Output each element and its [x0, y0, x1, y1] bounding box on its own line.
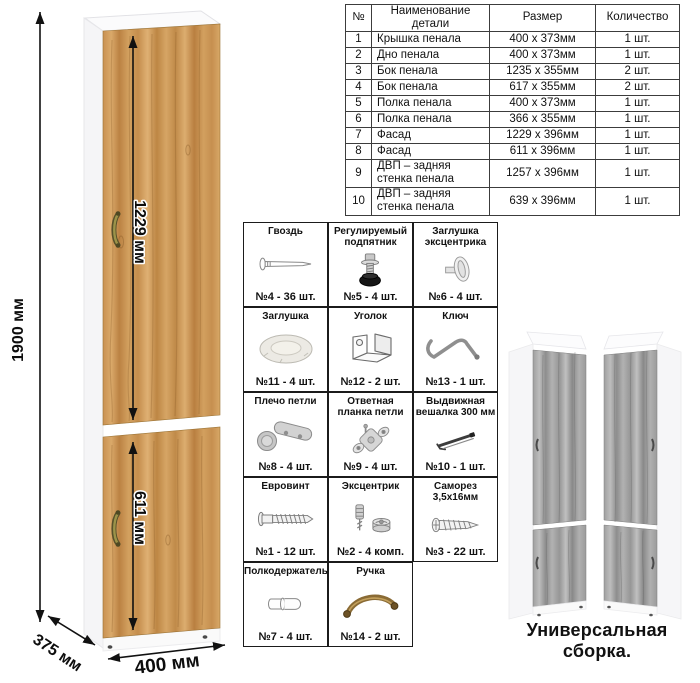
variant-cabinet-right: [604, 332, 681, 619]
hardware-title: Эксцентрик: [329, 478, 412, 492]
cell-qty: 1 шт.: [596, 31, 680, 47]
hardware-count: №1 - 12 шт.: [244, 546, 327, 561]
dimension-height-1900: 1900 мм: [10, 12, 40, 622]
cell-name: ДВП – задняя стенка пенала: [372, 187, 490, 215]
lower-door-label: 611 мм: [131, 491, 148, 545]
cell-size: 611 х 396мм: [490, 143, 596, 159]
hardware-count: №5 - 4 шт.: [329, 291, 412, 306]
hardware-item-handle: Ручка №14 - 2 шт.: [328, 562, 413, 647]
table-row: 6 Полка пенала 366 х 355мм 1 шт.: [346, 111, 680, 127]
hardware-count: №9 - 4 шт.: [329, 461, 412, 476]
cell-name: Фасад: [372, 127, 490, 143]
cell-size: 400 х 373мм: [490, 47, 596, 63]
cam-lock-icon: [329, 492, 412, 546]
hardware-count: №14 - 2 шт.: [329, 631, 412, 646]
hardware-item-shelf-pin: Полкодержатель №7 - 4 шт.: [243, 562, 328, 647]
parts-table: № Наименование детали Размер Количество …: [345, 4, 680, 216]
table-row: 9 ДВП – задняя стенка пенала 1257 х 396м…: [346, 159, 680, 187]
cell-size: 1257 х 396мм: [490, 159, 596, 187]
cell-num: 6: [346, 111, 372, 127]
cap-icon: [244, 322, 327, 376]
hardware-title: Гвоздь: [244, 223, 327, 237]
col-header-size: Размер: [490, 5, 596, 32]
hardware-title: Евровинт: [244, 478, 327, 492]
hardware-count: №10 - 1 шт.: [414, 461, 497, 476]
hinge-arm-icon: [244, 407, 327, 461]
hardware-title: Саморез 3,5х16мм: [414, 478, 497, 503]
confirmat-screw-icon: [244, 492, 327, 546]
hardware-title: Ручка: [329, 563, 412, 577]
key-icon: [414, 322, 497, 376]
hardware-title: Полкодержатель: [244, 563, 327, 577]
cell-size: 400 х 373мм: [490, 95, 596, 111]
cell-num: 9: [346, 159, 372, 187]
assembly-caption: Универсальная сборка.: [494, 620, 700, 662]
upper-door-label: 1229 мм: [131, 200, 148, 264]
dimension-width-400: 400 мм: [108, 645, 225, 679]
corner-bracket-icon: [329, 322, 412, 376]
hinge-plate-icon: [329, 418, 412, 461]
cell-size: 1235 х 355мм: [490, 63, 596, 79]
col-header-num: №: [346, 5, 372, 32]
cell-name: Фасад: [372, 143, 490, 159]
universal-assembly-variants: [497, 325, 700, 620]
hardware-item-hinge-arm: Плечо петли №8 - 4 шт.: [243, 392, 328, 477]
cell-num: 5: [346, 95, 372, 111]
cam-cover-icon: [414, 248, 497, 291]
hardware-item-self-tapping-screw: Саморез 3,5х16мм №3 - 22 шт.: [413, 477, 498, 562]
cell-qty: 2 шт.: [596, 63, 680, 79]
cell-name: Бок пенала: [372, 79, 490, 95]
cell-name: Полка пенала: [372, 111, 490, 127]
hardware-title: Ключ: [414, 308, 497, 322]
hardware-item-hinge-plate: Ответная планка петли №9 - 4 шт.: [328, 392, 413, 477]
assembly-instruction-page: 1900 мм 1229 мм 611 мм 400 мм 375 мм № Н…: [0, 0, 700, 683]
cell-qty: 1 шт.: [596, 127, 680, 143]
cell-size: 366 х 355мм: [490, 111, 596, 127]
table-row: 4 Бок пенала 617 х 355мм 2 шт.: [346, 79, 680, 95]
cell-num: 4: [346, 79, 372, 95]
hardware-grid: Гвоздь №4 - 36 шт. Регулируемый подпятни…: [243, 222, 498, 647]
cell-name: Полка пенала: [372, 95, 490, 111]
table-row: 8 Фасад 611 х 396мм 1 шт.: [346, 143, 680, 159]
self-tapping-screw-icon: [414, 503, 497, 546]
cabinet-upper-door: [103, 24, 220, 425]
hardware-item-cap: Заглушка №11 - 4 шт.: [243, 307, 328, 392]
cell-name: Дно пенала: [372, 47, 490, 63]
hardware-count: №4 - 36 шт.: [244, 291, 327, 306]
hardware-item-pullout-hanger: Выдвижная вешалка 300 мм №10 - 1 шт.: [413, 392, 498, 477]
hardware-item-confirmat-screw: Евровинт №1 - 12 шт.: [243, 477, 328, 562]
adjustable-foot-icon: [329, 248, 412, 291]
table-row: 2 Дно пенала 400 х 373мм 1 шт.: [346, 47, 680, 63]
cell-size: 639 х 396мм: [490, 187, 596, 215]
hardware-count: №13 - 1 шт.: [414, 376, 497, 391]
hardware-count: №2 - 4 комп.: [329, 546, 412, 561]
cabinet-lower-door: [103, 427, 220, 638]
hardware-count: №12 - 2 шт.: [329, 376, 412, 391]
hardware-item-corner-bracket: Уголок №12 - 2 шт.: [328, 307, 413, 392]
cell-size: 617 х 355мм: [490, 79, 596, 95]
hardware-count: №11 - 4 шт.: [244, 376, 327, 391]
cabinet-illustration: 1900 мм 1229 мм 611 мм 400 мм 375 мм: [0, 0, 245, 683]
hardware-count: №7 - 4 шт.: [244, 631, 327, 646]
col-header-qty: Количество: [596, 5, 680, 32]
hardware-item-cam-lock: Эксцентрик №2 - 4 комп.: [328, 477, 413, 562]
table-row: 7 Фасад 1229 х 396мм 1 шт.: [346, 127, 680, 143]
cell-qty: 1 шт.: [596, 95, 680, 111]
cell-num: 7: [346, 127, 372, 143]
hardware-title: Ответная планка петли: [329, 393, 412, 418]
cell-qty: 1 шт.: [596, 143, 680, 159]
hardware-title: Регулируемый подпятник: [329, 223, 412, 248]
cell-qty: 1 шт.: [596, 111, 680, 127]
hardware-title: Заглушка: [244, 308, 327, 322]
hardware-item-adjustable-foot: Регулируемый подпятник №5 - 4 шт.: [328, 222, 413, 307]
cell-num: 1: [346, 31, 372, 47]
cell-name: Бок пенала: [372, 63, 490, 79]
cell-num: 10: [346, 187, 372, 215]
table-row: 1 Крышка пенала 400 х 373мм 1 шт.: [346, 31, 680, 47]
hardware-title: Уголок: [329, 308, 412, 322]
hardware-item-key: Ключ №13 - 1 шт.: [413, 307, 498, 392]
cell-qty: 2 шт.: [596, 79, 680, 95]
shelf-pin-icon: [244, 577, 327, 631]
hardware-item-nail: Гвоздь №4 - 36 шт.: [243, 222, 328, 307]
table-row: 3 Бок пенала 1235 х 355мм 2 шт.: [346, 63, 680, 79]
cell-num: 2: [346, 47, 372, 63]
hardware-title: Выдвижная вешалка 300 мм: [414, 393, 497, 418]
table-row: 10 ДВП – задняя стенка пенала 639 х 396м…: [346, 187, 680, 215]
cell-name: ДВП – задняя стенка пенала: [372, 159, 490, 187]
cell-num: 8: [346, 143, 372, 159]
cell-name: Крышка пенала: [372, 31, 490, 47]
cell-qty: 1 шт.: [596, 187, 680, 215]
col-header-name: Наименование детали: [372, 5, 490, 32]
parts-table-header-row: № Наименование детали Размер Количество: [346, 5, 680, 32]
cell-qty: 1 шт.: [596, 47, 680, 63]
handle-icon: [329, 577, 412, 631]
hardware-title: Заглушка эксцентрика: [414, 223, 497, 248]
hardware-count: №3 - 22 шт.: [414, 546, 497, 561]
cell-size: 1229 х 396мм: [490, 127, 596, 143]
hardware-count: №6 - 4 шт.: [414, 291, 497, 306]
cell-num: 3: [346, 63, 372, 79]
height-label: 1900 мм: [10, 298, 27, 362]
nail-icon: [244, 237, 327, 291]
hardware-item-cam-cover: Заглушка эксцентрика №6 - 4 шт.: [413, 222, 498, 307]
cell-size: 400 х 373мм: [490, 31, 596, 47]
hardware-count: №8 - 4 шт.: [244, 461, 327, 476]
pullout-hanger-icon: [414, 418, 497, 461]
hardware-title: Плечо петли: [244, 393, 327, 407]
depth-label: 375 мм: [30, 631, 85, 675]
table-row: 5 Полка пенала 400 х 373мм 1 шт.: [346, 95, 680, 111]
cell-qty: 1 шт.: [596, 159, 680, 187]
variant-cabinet-left: [509, 332, 586, 619]
